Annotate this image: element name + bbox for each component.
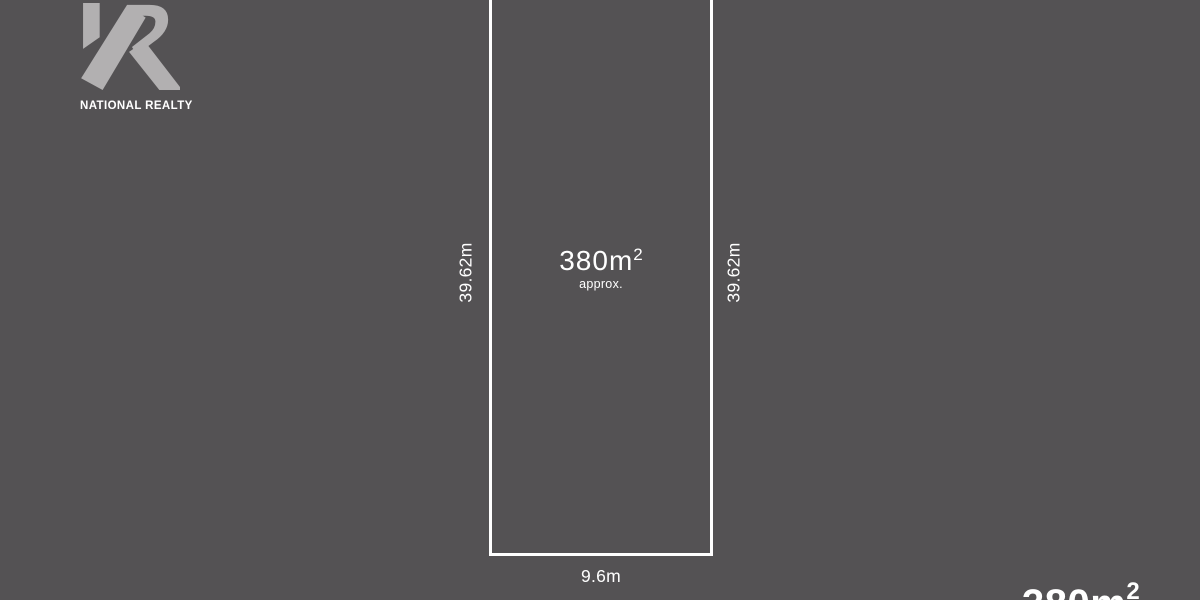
area-watermark: 380m2 bbox=[1022, 584, 1140, 600]
watermark-superscript: 2 bbox=[1126, 580, 1139, 600]
brand-logo: NATIONAL REALTY bbox=[80, 2, 182, 112]
lot-area-superscript: 2 bbox=[633, 246, 642, 263]
lot-area-label: 380m2 bbox=[489, 247, 713, 275]
lot-area-qualifier: approx. bbox=[489, 277, 713, 291]
lot-area-value: 380m bbox=[559, 245, 633, 276]
brand-name: NATIONAL REALTY bbox=[80, 100, 182, 112]
dimension-frontage: 9.6m bbox=[489, 566, 713, 587]
national-realty-r-icon bbox=[80, 2, 180, 90]
land-plot-diagram: NATIONAL REALTY 380m2 approx. 39.62m 39.… bbox=[0, 0, 1200, 600]
dimension-depth-right: 39.62m bbox=[724, 233, 745, 313]
dimension-depth-left: 39.62m bbox=[456, 233, 477, 313]
watermark-value: 380m bbox=[1022, 582, 1126, 600]
